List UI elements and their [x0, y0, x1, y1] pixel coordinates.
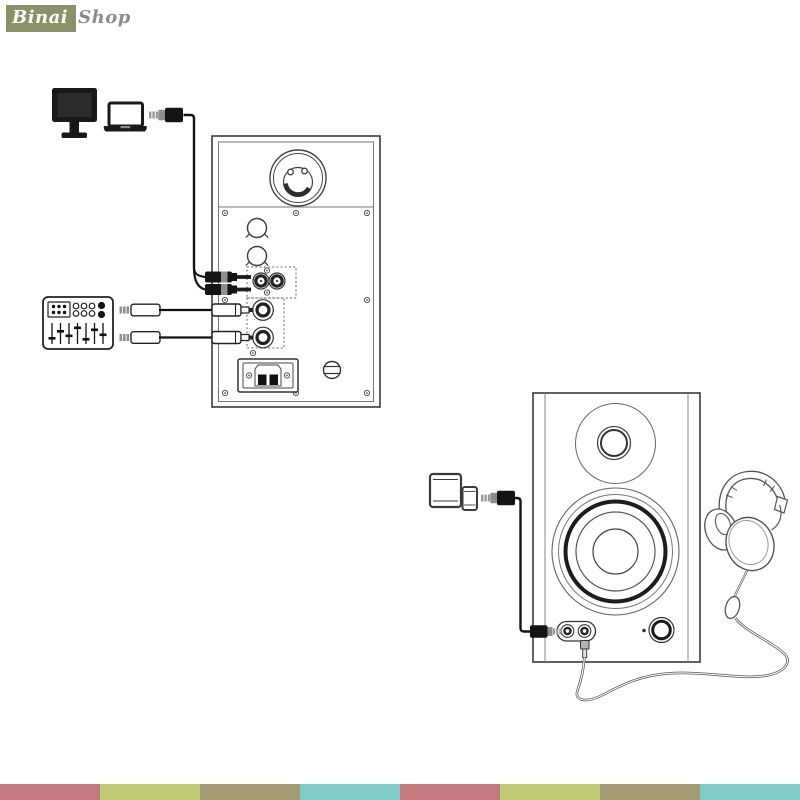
screw-icon: [264, 268, 269, 273]
screw-icon: [364, 210, 369, 215]
power-led: [642, 629, 646, 633]
desktop-monitor-icon: [52, 88, 97, 138]
trs-cable-upper: [120, 304, 254, 316]
screw-icon: [293, 210, 298, 215]
brand-logo: BinaiShop: [6, 5, 133, 32]
aux-input-jack: [561, 625, 574, 638]
woofer: [552, 488, 679, 615]
stripe-block: [300, 784, 400, 800]
stripe-block: [200, 784, 300, 800]
headphone-output-jack: [578, 625, 591, 638]
studio-monitor-front: [533, 393, 700, 662]
trs-input-jack-2: [253, 327, 274, 348]
volume-knob: [649, 618, 674, 643]
studio-monitor-rear: [212, 136, 380, 407]
audio-mixer-icon: [43, 297, 113, 349]
footer-color-stripe: [0, 784, 800, 800]
screw-icon: [364, 297, 369, 302]
cable-run: [514, 498, 530, 632]
screw-icon: [264, 290, 269, 295]
screw-icon: [250, 350, 255, 355]
rca-input-jack-right: [269, 273, 285, 289]
stripe-block: [400, 784, 500, 800]
trs-input-jack-1: [253, 300, 274, 321]
fuse-holder: [324, 362, 341, 379]
cable-run: [184, 115, 195, 268]
screw-icon: [222, 210, 227, 215]
aux-plug-phone: [481, 491, 515, 505]
screw-icon: [222, 297, 227, 302]
bass-reflex-port: [270, 150, 326, 206]
headphones-icon: [699, 471, 787, 620]
stripe-block: [700, 784, 800, 800]
brand-logo-secondary: Shop: [76, 5, 133, 32]
inline-remote-icon: [723, 595, 742, 620]
tweeter: [576, 404, 656, 484]
stripe-block: [0, 784, 100, 800]
trs-plug-mixer-1: [120, 304, 161, 316]
power-inlet: [238, 359, 298, 392]
page: BinaiShop: [0, 0, 800, 800]
front-jack-plate: [557, 622, 596, 642]
stripe-block: [500, 784, 600, 800]
rca-input-jack-left: [253, 273, 269, 289]
smartphone-icon: [463, 487, 478, 510]
trs-cable-lower: [120, 332, 254, 344]
connection-diagram: [0, 0, 800, 800]
laptop-icon: [104, 103, 147, 132]
stripe-block: [600, 784, 700, 800]
stripe-block: [100, 784, 200, 800]
tablet-icon: [430, 474, 461, 507]
aux-plug-computer: [149, 108, 183, 122]
headband: [719, 471, 785, 520]
brand-logo-primary: Binai: [6, 5, 76, 32]
screw-icon: [222, 390, 227, 395]
screw-icon: [364, 390, 369, 395]
trs-plug-mixer-2: [120, 332, 161, 344]
